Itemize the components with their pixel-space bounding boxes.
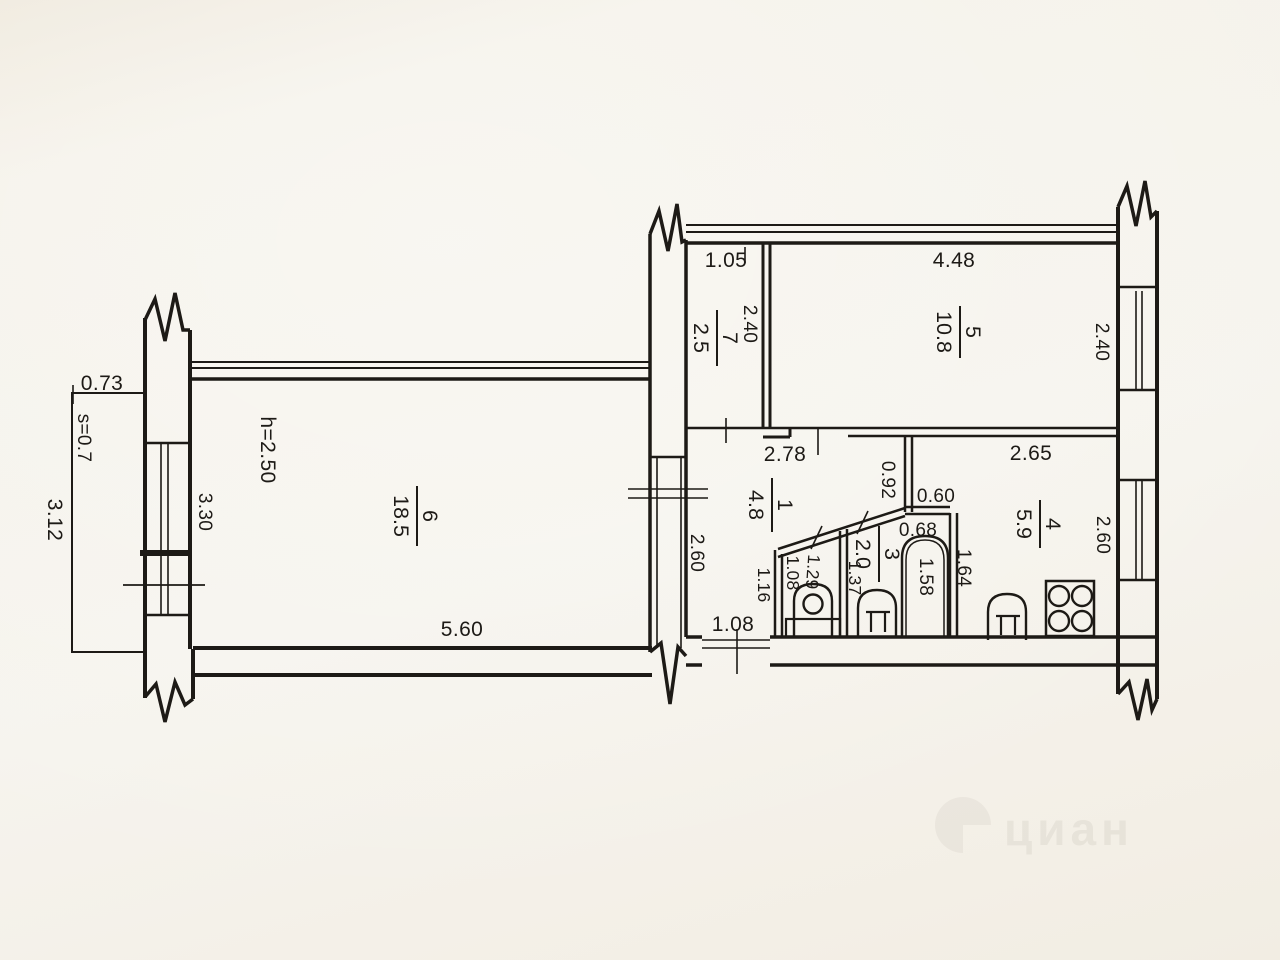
dim-room5-window: 2.40 [1091, 323, 1112, 361]
room-number: 4 [1041, 518, 1065, 530]
right-wall [1118, 181, 1157, 720]
note-balcony-area: s=0.7 [73, 414, 94, 463]
dim-bath-right-wall: 1.64 [953, 549, 974, 587]
room-area: 18.5 [389, 495, 413, 537]
toilet-icon [786, 584, 840, 637]
wall-break-icon [1118, 181, 1157, 226]
room-number: 7 [718, 332, 742, 344]
room-label-5: 5 10.8 [932, 306, 985, 358]
dim-wc-left: 1.08 [783, 556, 803, 591]
room-number: 5 [961, 326, 985, 338]
dim-room5-width: 4.48 [933, 249, 975, 272]
watermark: циан [935, 797, 1134, 855]
wall-break-icon [145, 682, 193, 722]
room-label-1: 1 4.8 [744, 478, 797, 532]
floor-plan-drawing: 6 18.5 7 2.5 5 10.8 1 4.8 3 2.0 4 5.9 [0, 0, 1280, 960]
dim-hall-depth: 2.60 [686, 534, 707, 572]
floor-plan-scan: 6 18.5 7 2.5 5 10.8 1 4.8 3 2.0 4 5.9 [0, 0, 1280, 960]
fixtures [786, 536, 1094, 640]
note-ceiling-height: h=2.50 [256, 416, 279, 483]
top-wall [686, 225, 1118, 263]
stove-icon [1046, 581, 1094, 636]
dim-kitchen-window: 2.60 [1092, 516, 1113, 554]
dim-entry-door: 1.08 [712, 613, 754, 636]
dim-room7-depth: 2.40 [739, 305, 760, 343]
room-area: 2.5 [689, 323, 713, 353]
room-area: 4.8 [744, 490, 768, 520]
bathroom-sink-icon [858, 590, 896, 637]
kitchen-sink-icon [988, 594, 1026, 640]
dim-balcony-width: 0.73 [81, 372, 123, 395]
room-area: 5.9 [1012, 509, 1036, 539]
room-number: 3 [880, 548, 904, 560]
dim-wc-outer-wall: 1.16 [754, 568, 774, 603]
center-wall-column [628, 204, 708, 704]
room-labels: 6 18.5 7 2.5 5 10.8 1 4.8 3 2.0 4 5.9 [389, 306, 1065, 582]
watermark-text: циан [1004, 803, 1134, 855]
dim-bath-width: 0.68 [899, 520, 937, 541]
dim-wc-right: 1.29 [802, 554, 824, 590]
dim-bath-left: 1.37 [845, 561, 865, 596]
dim-lobby-width: 0.60 [917, 486, 955, 507]
dim-room6-window: 3.30 [194, 493, 215, 531]
wall-break-icon [650, 204, 686, 251]
room-number: 1 [773, 499, 797, 511]
wall-break-icon [145, 293, 190, 341]
dim-room6-width: 5.60 [441, 618, 483, 641]
wall-break-icon [650, 643, 686, 704]
watermark-logo-icon [935, 797, 991, 853]
room-label-4: 4 5.9 [1012, 500, 1065, 548]
room-label-6: 6 18.5 [389, 486, 442, 546]
wall-break-icon [1118, 679, 1157, 720]
room-area: 10.8 [932, 311, 956, 353]
dim-hall-width: 2.78 [764, 443, 806, 466]
left-wall [123, 293, 205, 722]
dim-lobby-depth: 0.92 [877, 461, 898, 499]
room-label-7: 7 2.5 [689, 310, 742, 366]
dim-room7-width: 1.05 [705, 249, 747, 272]
room-number: 6 [418, 510, 442, 522]
dim-bathtub-length: 1.58 [915, 558, 936, 596]
dim-balcony-length: 3.12 [43, 499, 66, 541]
dim-kitchen-top-width: 2.65 [1010, 442, 1052, 465]
